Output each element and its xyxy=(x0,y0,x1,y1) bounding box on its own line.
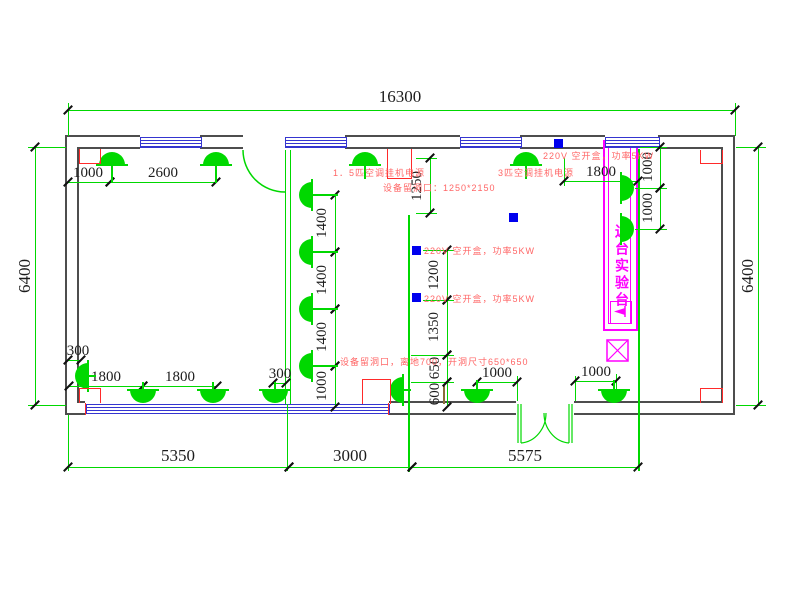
dimension-line xyxy=(575,381,616,382)
dimension-label: 300 xyxy=(46,342,110,360)
dimension-line xyxy=(68,110,735,111)
door-swing-arc xyxy=(521,413,546,443)
dimension-label: 1400 xyxy=(313,248,331,312)
door-swing-arc xyxy=(544,413,569,443)
dimension-line xyxy=(110,182,216,183)
dimension-label: 5350 xyxy=(146,447,210,465)
annotation-text: 220V 空开盒，功率5KW xyxy=(424,292,535,305)
socket-box-icon xyxy=(554,139,563,148)
extension-line xyxy=(736,405,766,406)
annotation-text: 设备留洞口：1250*2150 xyxy=(383,181,496,194)
equipment-marker-box xyxy=(700,388,723,403)
equipment-marker-box xyxy=(362,379,391,404)
floor-plan-canvas: 边台实验台 1630010002600180030018001800300100… xyxy=(0,0,800,600)
window-band-edge xyxy=(388,403,389,415)
dimension-label: 1000 xyxy=(639,176,657,240)
double-door-opening xyxy=(516,401,574,417)
light-fixture-icon xyxy=(620,213,622,245)
light-fixture-icon xyxy=(312,194,338,196)
light-fixture-icon xyxy=(620,172,622,204)
annotation-text: 220V 空开盒，功率5KW xyxy=(543,149,654,162)
annotation-text: 1．5匹空调挂机电源 xyxy=(333,166,425,179)
socket-box-icon xyxy=(412,246,421,255)
dimension-line xyxy=(68,182,110,183)
dimension-line xyxy=(758,147,759,405)
dimension-label: 1000 xyxy=(564,363,628,381)
dimension-line xyxy=(335,195,336,252)
dimension-label: 6400 xyxy=(16,244,34,308)
bottom-window-band xyxy=(86,404,390,414)
window-symbol xyxy=(140,137,202,148)
dimension-line xyxy=(477,382,517,383)
dimension-line xyxy=(335,309,336,366)
equipment-marker-box xyxy=(700,150,723,164)
light-fixture-icon xyxy=(274,382,276,390)
dimension-label: 16300 xyxy=(368,88,432,106)
light-fixture-icon xyxy=(312,251,338,253)
annotation-text: 设备留洞口，离地700，开洞尺寸650*650 xyxy=(340,355,529,368)
dimension-label: 2600 xyxy=(131,164,195,182)
light-fixture-icon xyxy=(613,380,615,390)
dimension-line xyxy=(143,386,217,387)
dimension-label: 3000 xyxy=(318,447,382,465)
light-fixture-icon xyxy=(215,165,217,183)
light-fixture-icon xyxy=(476,380,478,390)
extension-line xyxy=(287,404,288,471)
dimension-label: 1000 xyxy=(313,354,331,418)
dimension-line xyxy=(289,467,412,468)
light-fixture-icon xyxy=(142,382,144,390)
dimension-label: 1800 xyxy=(148,368,212,386)
object-line xyxy=(408,215,410,472)
dimension-line xyxy=(335,366,336,407)
extension-line xyxy=(736,147,766,148)
annotation-text: 3匹空调挂机电源 xyxy=(498,166,574,179)
equipment-marker-box xyxy=(79,388,101,403)
socket-box-icon xyxy=(509,213,518,222)
annotation-text: 220V 空开盒，功率5KW xyxy=(424,244,535,257)
light-fixture-icon xyxy=(403,389,411,391)
dimension-line xyxy=(660,188,661,229)
light-fixture-icon xyxy=(111,165,113,183)
dimension-label: 1400 xyxy=(313,191,331,255)
dimension-label: 5575 xyxy=(493,447,557,465)
light-fixture-icon xyxy=(312,365,338,367)
dimension-line xyxy=(447,300,448,355)
light-fixture-icon xyxy=(312,308,338,310)
window-symbol xyxy=(460,137,522,148)
light-fixture-icon xyxy=(212,382,214,390)
dimension-line xyxy=(35,147,36,405)
dimension-line xyxy=(68,467,289,468)
dimension-label: 6400 xyxy=(739,244,757,308)
window-band-edge xyxy=(85,403,86,415)
socket-box-icon xyxy=(412,293,421,302)
light-fixture-icon xyxy=(88,375,96,377)
extension-line xyxy=(68,415,69,471)
dimension-line xyxy=(660,147,661,188)
equipment-marker-box xyxy=(79,149,101,164)
dimension-label: 600 xyxy=(426,362,444,426)
window-symbol xyxy=(285,137,347,148)
dimension-line xyxy=(335,252,336,309)
dimension-line xyxy=(412,467,638,468)
bench-sink-box xyxy=(610,301,632,324)
